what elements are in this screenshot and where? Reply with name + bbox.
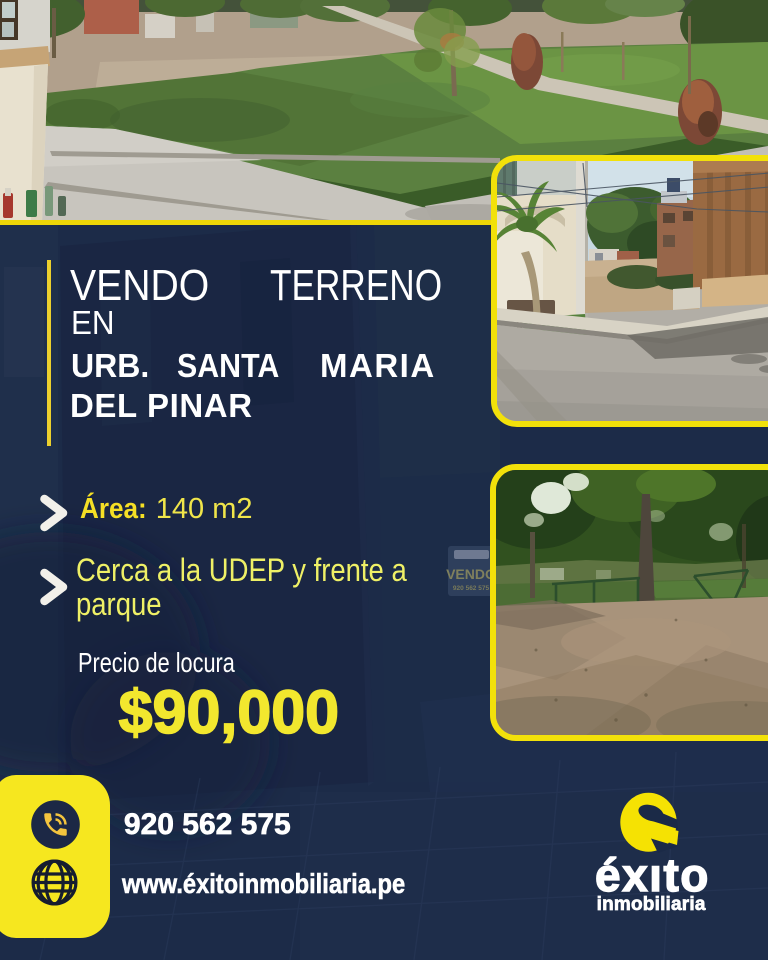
svg-text:VENDO: VENDO <box>446 566 496 582</box>
svg-text:920 562 575: 920 562 575 <box>453 585 490 592</box>
